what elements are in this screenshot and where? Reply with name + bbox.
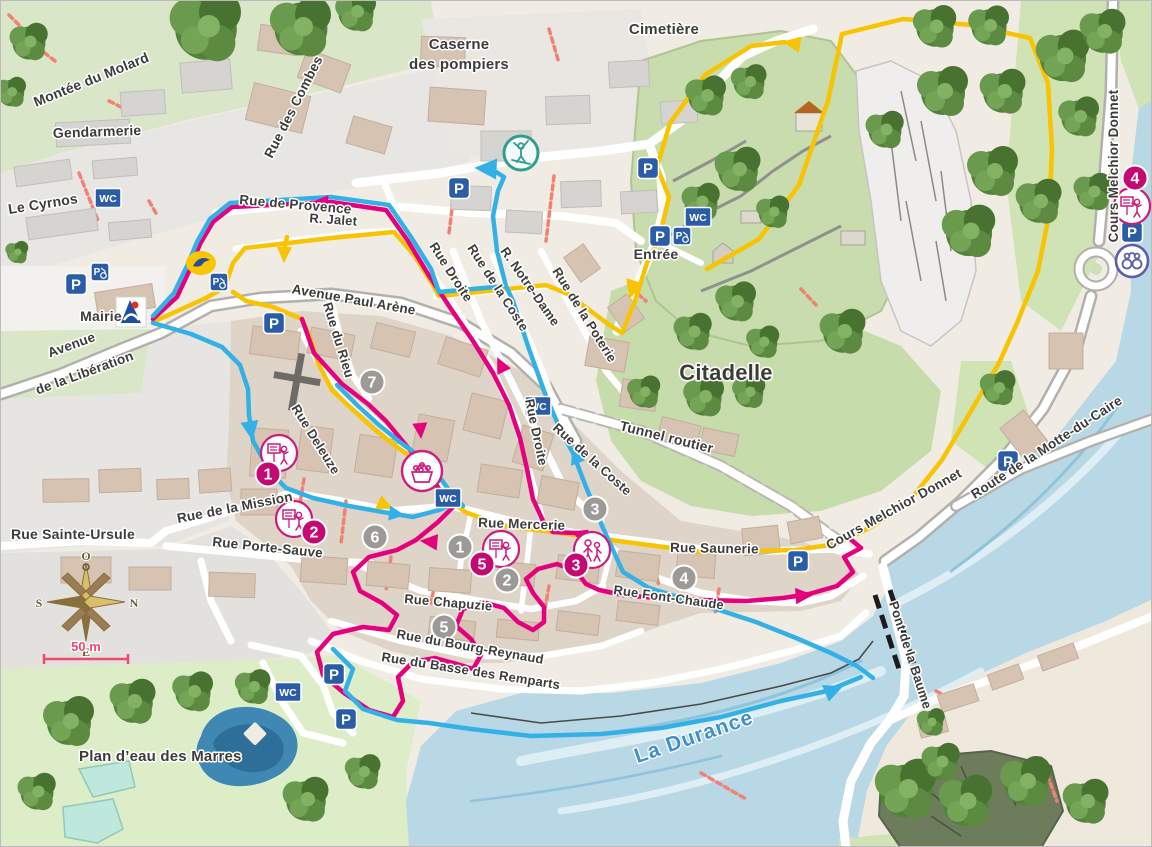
- building: [209, 572, 256, 598]
- poi-marker-pink-5: 5: [470, 552, 495, 577]
- viewpoint-binoculars-icon: [1116, 245, 1148, 277]
- place-label-citadelle: Citadelle: [679, 360, 773, 385]
- place-label: Entrée: [634, 246, 679, 262]
- building: [108, 219, 151, 241]
- wc-icon: WC: [435, 489, 461, 508]
- compass-west: O: [81, 549, 90, 563]
- svg-text:P: P: [1127, 225, 1137, 242]
- poi-marker-gray-2: 2: [495, 568, 520, 593]
- compass-south: S: [36, 596, 43, 610]
- map-canvas: PPPPPPPPPPPPPWCWCWCWCWC 123451234567 Mon…: [1, 1, 1152, 847]
- svg-text:P: P: [643, 161, 653, 178]
- building: [1049, 333, 1083, 369]
- street-label: Rue Mercerie: [478, 515, 566, 533]
- scale-label: 50 m: [71, 639, 101, 654]
- parking-icon: P: [650, 226, 671, 247]
- street-label: Gendarmerie: [53, 122, 142, 141]
- market-basket-icon: [402, 451, 442, 491]
- post-office-icon: [186, 251, 216, 275]
- monument-icon: [504, 136, 538, 170]
- parking-icon: P: [638, 158, 659, 179]
- lake-label: Plan d’eau des Marres: [79, 748, 242, 765]
- tree: [1, 77, 26, 107]
- building: [198, 468, 232, 493]
- svg-text:2: 2: [503, 573, 512, 590]
- accessible-parking-icon: P: [673, 227, 691, 245]
- svg-text:P: P: [71, 277, 81, 294]
- parking-icon: P: [324, 664, 345, 685]
- svg-text:P: P: [94, 267, 101, 278]
- place-label: Mairie: [80, 308, 122, 324]
- svg-text:3: 3: [591, 502, 600, 519]
- poi-marker-gray-1: 1: [448, 535, 473, 560]
- building: [620, 190, 657, 214]
- svg-text:P: P: [793, 554, 803, 571]
- street-label: Cours Melchior Donnet: [1106, 89, 1121, 242]
- svg-text:WC: WC: [279, 687, 297, 699]
- parking-icon: P: [336, 709, 357, 730]
- building: [505, 210, 542, 234]
- building: [92, 157, 137, 179]
- svg-text:P: P: [341, 712, 351, 729]
- poi-marker-pink-3: 3: [564, 553, 589, 578]
- svg-text:P: P: [329, 667, 339, 684]
- svg-text:4: 4: [1131, 171, 1140, 188]
- poi-marker-pink-4: 4: [1123, 166, 1148, 191]
- svg-text:5: 5: [478, 557, 487, 574]
- building: [477, 464, 523, 498]
- wc-icon: WC: [275, 683, 301, 702]
- building: [43, 479, 89, 503]
- building: [546, 95, 591, 125]
- svg-text:6: 6: [371, 530, 380, 547]
- svg-text:1: 1: [264, 467, 273, 484]
- building: [428, 568, 472, 594]
- building: [428, 87, 486, 125]
- poi-marker-gray-7: 7: [360, 370, 385, 395]
- wc-icon: WC: [685, 208, 711, 227]
- poi-marker-gray-3: 3: [583, 497, 608, 522]
- parking-icon: P: [264, 313, 285, 334]
- poi-marker-pink-2: 2: [302, 520, 327, 545]
- street-label: Rue Sainte-Ursule: [11, 526, 135, 542]
- parking-icon: P: [788, 551, 809, 572]
- poi-marker-gray-6: 6: [363, 525, 388, 550]
- building: [561, 180, 602, 207]
- tourist-map: PPPPPPPPPPPPPWCWCWCWCWC 123451234567 Mon…: [0, 0, 1152, 847]
- wc-icon: WC: [95, 189, 121, 208]
- svg-text:1: 1: [456, 540, 465, 557]
- compass-north: N: [130, 596, 139, 610]
- place-label: Cimetière: [629, 21, 699, 38]
- svg-text:P: P: [269, 316, 279, 333]
- place-label: Caserne: [429, 36, 490, 53]
- svg-text:4: 4: [680, 571, 689, 588]
- parking-icon: P: [449, 178, 470, 199]
- svg-text:P: P: [676, 231, 683, 242]
- poi-marker-gray-4: 4: [672, 566, 697, 591]
- svg-text:WC: WC: [439, 493, 457, 505]
- building: [120, 89, 166, 116]
- poi-marker-pink-1: 1: [256, 462, 281, 487]
- svg-text:WC: WC: [99, 193, 117, 205]
- accessible-parking-icon: P: [91, 263, 109, 281]
- building: [129, 567, 171, 590]
- svg-text:7: 7: [368, 375, 377, 392]
- building: [180, 59, 232, 93]
- building: [366, 561, 410, 589]
- svg-text:3: 3: [572, 558, 581, 575]
- building: [157, 478, 190, 499]
- building: [99, 468, 142, 492]
- accessible-parking-icon: P: [210, 273, 228, 291]
- svg-text:2: 2: [310, 525, 319, 542]
- parking-icon: P: [66, 274, 87, 295]
- place-label: des pompiers: [409, 56, 509, 73]
- svg-text:WC: WC: [689, 212, 707, 224]
- building: [300, 555, 348, 584]
- street-label: Rue Saunerie: [670, 540, 759, 557]
- svg-text:P: P: [655, 229, 665, 246]
- svg-text:P: P: [213, 277, 220, 288]
- building: [608, 60, 649, 88]
- svg-text:P: P: [454, 181, 464, 198]
